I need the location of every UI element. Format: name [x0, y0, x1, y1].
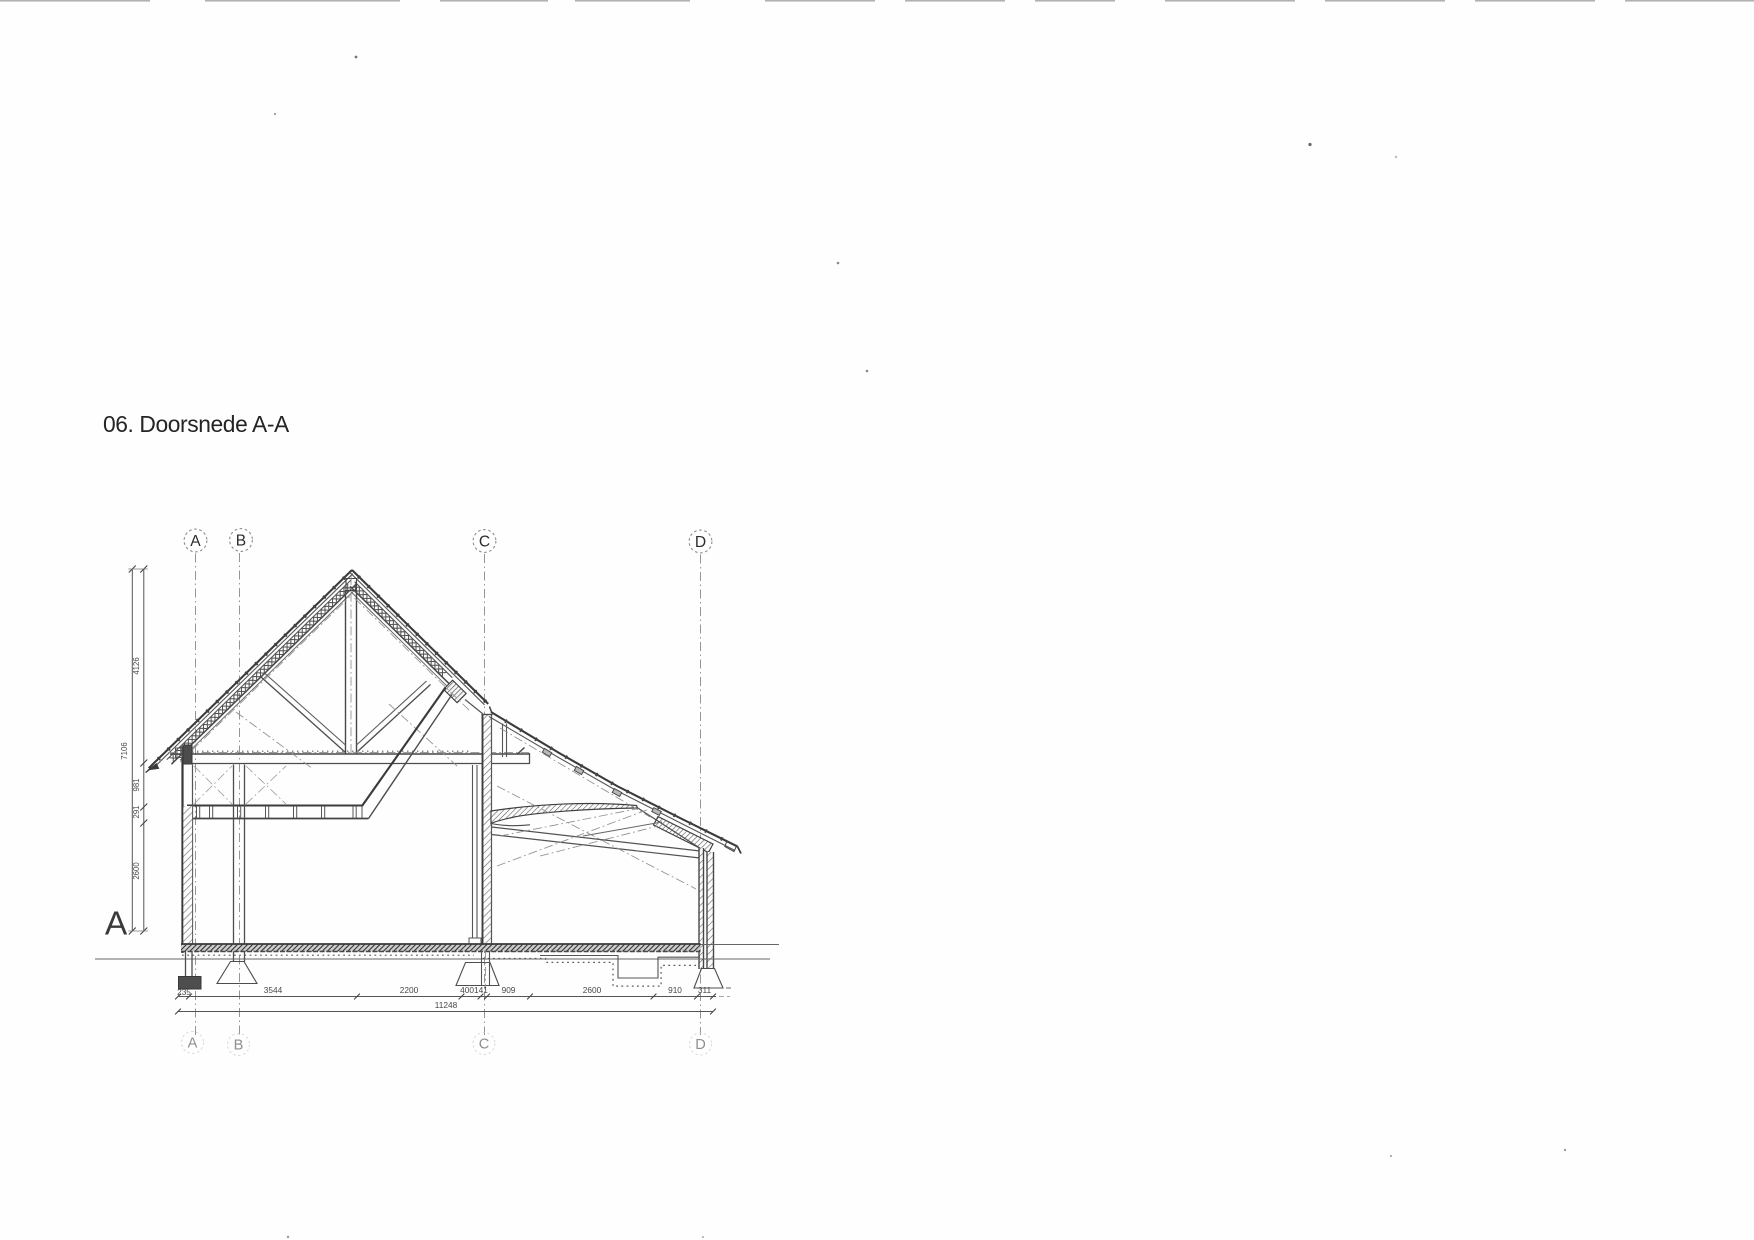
svg-text:3544: 3544	[264, 985, 283, 995]
svg-text:981: 981	[132, 778, 141, 791]
svg-text:B: B	[236, 532, 246, 549]
svg-text:2600: 2600	[132, 862, 141, 880]
svg-text:D: D	[695, 534, 706, 551]
svg-text:A: A	[105, 906, 128, 943]
svg-text:291: 291	[132, 805, 141, 818]
svg-text:A: A	[190, 533, 201, 550]
svg-text:235: 235	[177, 987, 191, 997]
svg-text:910: 910	[668, 985, 682, 995]
svg-text:C: C	[479, 1037, 490, 1053]
svg-text:909: 909	[502, 985, 516, 995]
svg-text:B: B	[234, 1038, 244, 1054]
svg-text:2600: 2600	[583, 985, 602, 995]
svg-text:C: C	[479, 533, 490, 550]
svg-text:D: D	[695, 1037, 706, 1053]
svg-text:7106: 7106	[120, 742, 129, 759]
svg-text:11248: 11248	[435, 1000, 458, 1010]
svg-text:06. Doorsnede A-A: 06. Doorsnede A-A	[103, 411, 290, 437]
svg-text:A: A	[188, 1036, 198, 1052]
svg-text:4126: 4126	[132, 657, 141, 674]
svg-text:2200: 2200	[400, 985, 419, 995]
svg-text:311: 311	[698, 985, 712, 995]
svg-text:400141: 400141	[460, 985, 488, 995]
